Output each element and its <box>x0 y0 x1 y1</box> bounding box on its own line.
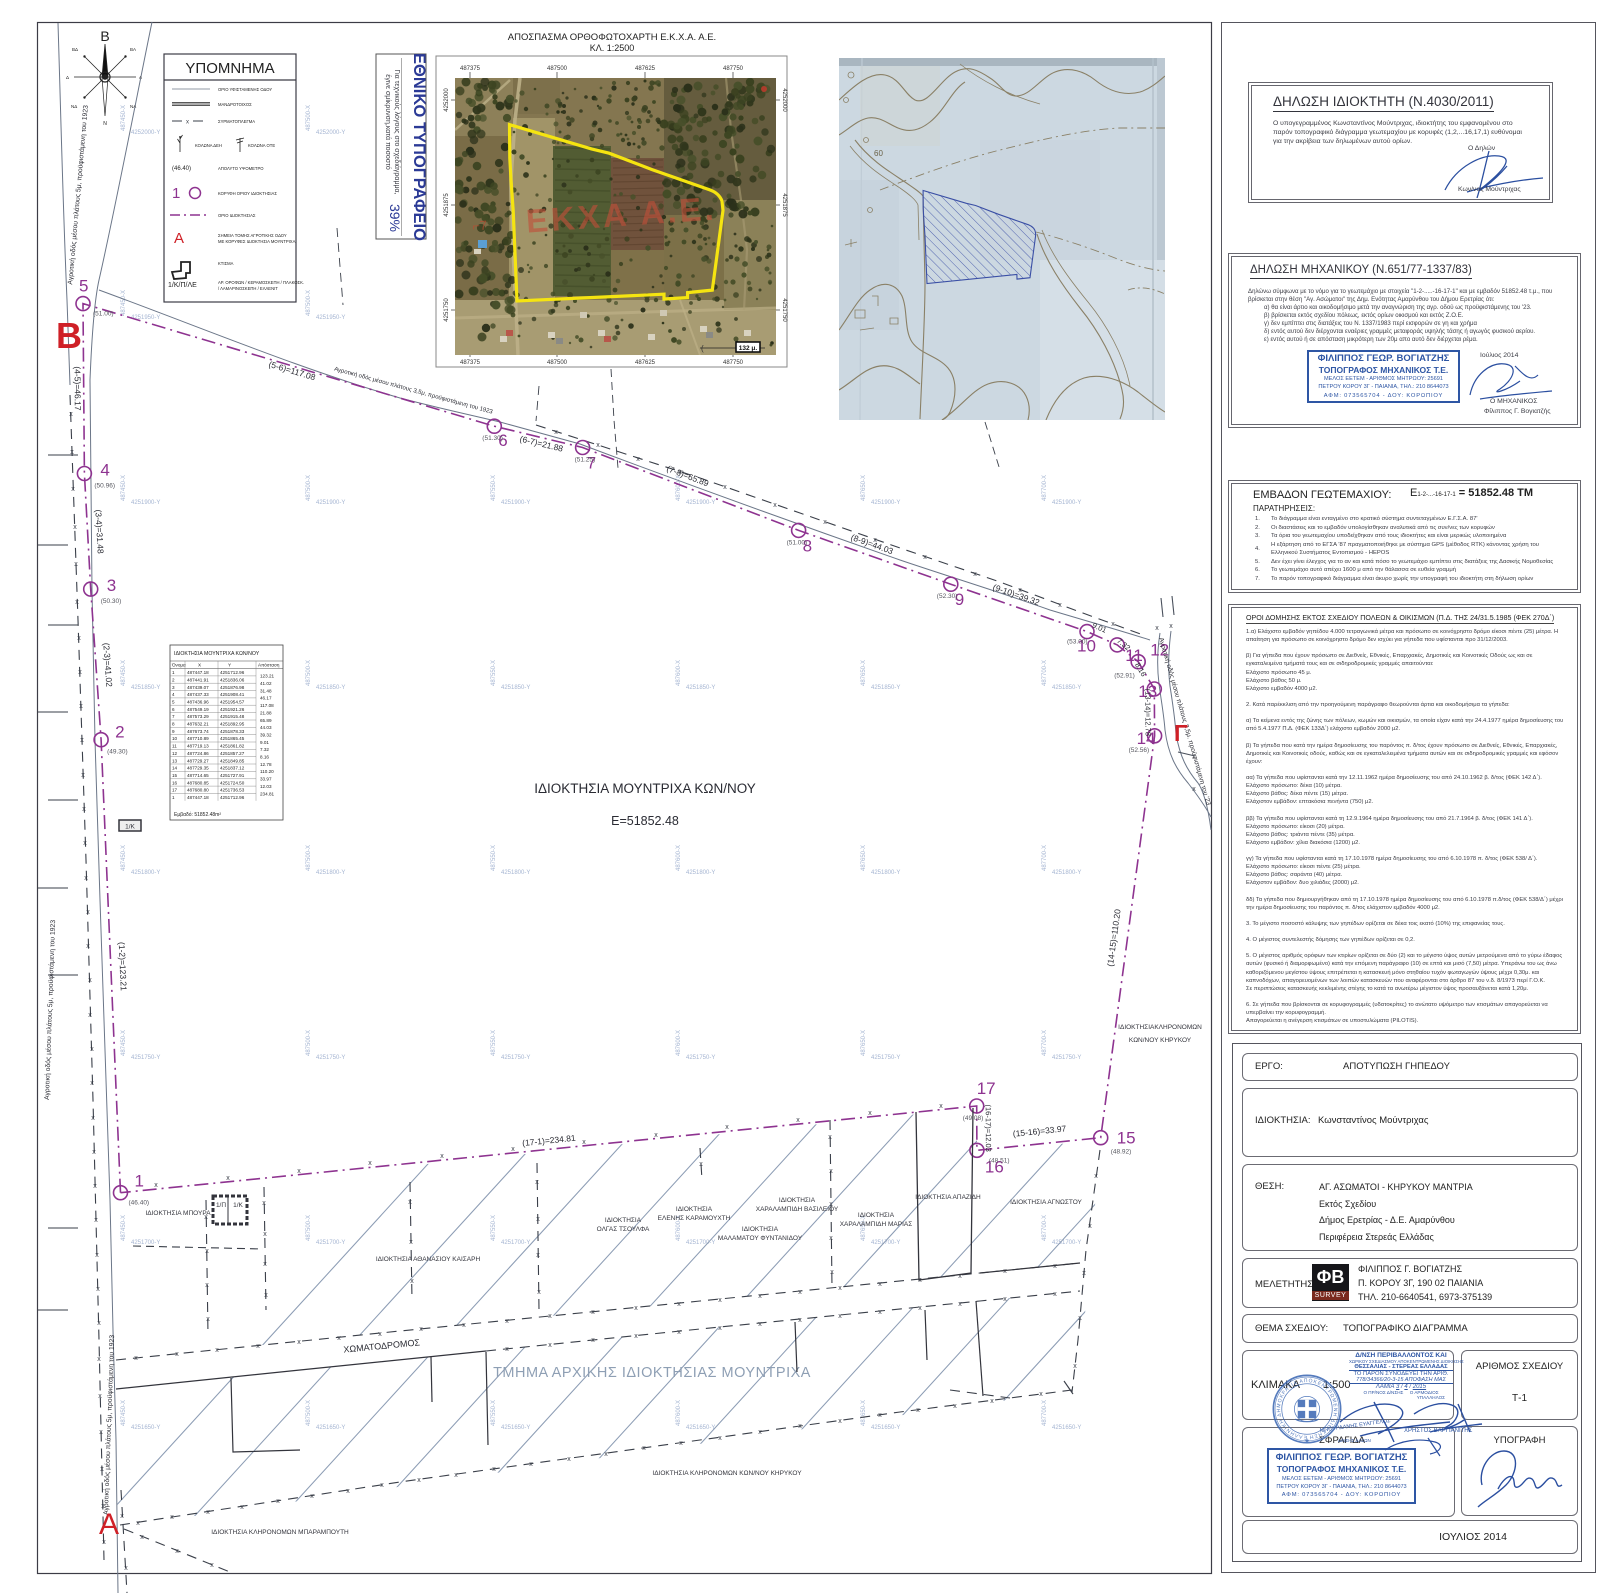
svg-text:x: x <box>829 1201 833 1208</box>
svg-text:ΑΡ. ΟΡΟΦΩΝ / ΚΕΡΑΜΟΣΚΕΠΗ / ΠΛΑ: ΑΡ. ΟΡΟΦΩΝ / ΚΕΡΑΜΟΣΚΕΠΗ / ΠΛΑΚΟΣΚ. <box>218 280 304 285</box>
svg-text:487500-X: 487500-X <box>306 845 312 871</box>
svg-text:Για τεχνικούς λόγους στο σχεδι: Για τεχνικούς λόγους στο σχεδιάγραμμα, <box>393 69 401 194</box>
svg-text:x: x <box>591 1337 595 1344</box>
svg-text:(7-8)=65.89: (7-8)=65.89 <box>665 463 710 488</box>
svg-text:(51.00): (51.00) <box>93 311 114 318</box>
svg-text:x: x <box>69 411 73 418</box>
svg-text:ΙΔΙΟΚΤΗΣΙΑ ΜΠΟΥΡΑ: ΙΔΙΟΚΤΗΣΙΑ ΜΠΟΥΡΑ <box>145 1210 211 1217</box>
svg-text:4251750: 4251750 <box>781 298 787 322</box>
svg-text:x: x <box>918 1305 922 1312</box>
svg-text:x: x <box>186 120 189 126</box>
svg-text:x: x <box>215 1347 219 1354</box>
svg-text:x: x <box>796 1117 800 1124</box>
svg-text:x: x <box>529 1461 533 1468</box>
svg-text:Όνομα: Όνομα <box>171 663 186 668</box>
svg-text:X: X <box>198 663 201 668</box>
svg-text:x: x <box>73 524 77 531</box>
svg-text:(14-15)=110.20: (14-15)=110.20 <box>1105 908 1123 967</box>
svg-text:4251837.12: 4251837.12 <box>220 766 245 771</box>
svg-text:A: A <box>174 230 184 247</box>
svg-text:x: x <box>973 571 977 578</box>
svg-text:487650-X: 487650-X <box>861 1400 867 1426</box>
svg-text:ΝΑ: ΝΑ <box>130 104 136 109</box>
svg-text:x: x <box>1088 1223 1092 1230</box>
svg-text:x: x <box>262 1200 266 1207</box>
svg-text:⌐7: ⌐7 <box>472 218 488 234</box>
svg-text:(17-1)=234.81: (17-1)=234.81 <box>522 1133 577 1148</box>
svg-text:x: x <box>97 1320 101 1327</box>
svg-text:4: 4 <box>172 692 175 697</box>
svg-text:ΙΔΙΟΚΤΗΣΙΑ ΚΛΗΡΟΝΟΜΩΝ ΚΩΝ/ΝΟΥ: ΙΔΙΟΚΤΗΣΙΑ ΚΛΗΡΟΝΟΜΩΝ ΚΩΝ/ΝΟΥ ΚΗΡΥΚΟΥ <box>652 1470 802 1477</box>
svg-text:(6-7)=21.88: (6-7)=21.88 <box>519 434 565 454</box>
svg-text:487500-X: 487500-X <box>306 1030 312 1056</box>
svg-text:4251850-Y: 4251850-Y <box>131 685 160 691</box>
svg-text:x: x <box>636 456 640 463</box>
svg-text:ΜΑΝΔΡΟΤΟΙΧΟΣ: ΜΑΝΔΡΟΤΟΙΧΟΣ <box>218 102 252 107</box>
svg-text:132 μ.: 132 μ. <box>739 345 758 352</box>
svg-text:4251878.33: 4251878.33 <box>220 729 245 734</box>
svg-text:x: x <box>256 1343 260 1350</box>
svg-text:x: x <box>604 1451 608 1458</box>
svg-text:x: x <box>838 1313 842 1320</box>
svg-text:ΚΟΡΥΦΗ ΟΡΙΟΥ ΙΔΙΟΚΤΗΣΙΑΣ: ΚΟΡΥΦΗ ΟΡΙΟΥ ΙΔΙΟΚΤΗΣΙΑΣ <box>218 191 277 196</box>
svg-text:17: 17 <box>977 1079 996 1098</box>
svg-text:4251800-Y: 4251800-Y <box>871 870 900 876</box>
svg-text:x: x <box>511 1146 515 1153</box>
svg-text:Y: Y <box>228 663 231 668</box>
svg-text:4251850-Y: 4251850-Y <box>871 685 900 691</box>
svg-text:4251650-Y: 4251650-Y <box>501 1425 530 1431</box>
svg-text:4251850-Y: 4251850-Y <box>501 685 530 691</box>
svg-text:4251950-Y: 4251950-Y <box>316 315 345 321</box>
svg-text:487550-X: 487550-X <box>491 1030 497 1056</box>
svg-text:ΤΜΗΜΑ ΑΡΧΙΚΗΣ ΙΔΙΟΚΤΗΣΙΑΣ ΜΟΥΝ: ΤΜΗΜΑ ΑΡΧΙΚΗΣ ΙΔΙΟΚΤΗΣΙΑΣ ΜΟΥΝΤΡΙΧΑ <box>493 1365 811 1381</box>
svg-text:487600-X: 487600-X <box>676 660 682 686</box>
svg-text:x: x <box>1169 623 1173 630</box>
svg-text:4251800-Y: 4251800-Y <box>686 870 715 876</box>
svg-text:4251750-Y: 4251750-Y <box>501 1055 530 1061</box>
svg-text:ΙΔΙΟΚΤΗΣΙΑ: ΙΔΙΟΚΤΗΣΙΑ <box>676 1206 713 1213</box>
svg-text:4251861.82: 4251861.82 <box>220 744 245 749</box>
svg-text:ΑΠΟΣΠΑΣΜΑ ΟΡΘΟΦΩΤΟΧΑΡΤΗ Ε.Κ.Χ.: ΑΠΟΣΠΑΣΜΑ ΟΡΘΟΦΩΤΟΧΑΡΤΗ Ε.Κ.Χ.Α. Α.Ε. <box>508 32 716 43</box>
svg-text:x: x <box>206 1316 210 1323</box>
svg-text:487500-X: 487500-X <box>306 1215 312 1241</box>
svg-text:x: x <box>773 502 777 509</box>
svg-text:x: x <box>154 1182 158 1189</box>
svg-text:x: x <box>83 840 87 847</box>
svg-text:487673.74: 487673.74 <box>187 729 209 734</box>
svg-text:4251712.96: 4251712.96 <box>220 670 245 675</box>
svg-text:x: x <box>878 1281 882 1288</box>
svg-text:4251850-Y: 4251850-Y <box>316 685 345 691</box>
svg-text:ΙΔΙΟΚΤΗΣΙΑΚΛΗΡΟΝΟΜΩΝ: ΙΔΙΟΚΤΗΣΙΑΚΛΗΡΟΝΟΜΩΝ <box>1118 1024 1202 1031</box>
svg-text:x: x <box>1053 1263 1057 1270</box>
svg-text:N: N <box>103 121 107 127</box>
svg-text:(51.30): (51.30) <box>482 435 503 442</box>
svg-text:/ ΛΑΜΑΡΙΝΟΣΚΕΠΗ / ΕΛΛΕΝΙΤ: / ΛΑΜΑΡΙΝΟΣΚΕΠΗ / ΕΛΛΕΝΙΤ <box>218 286 278 291</box>
svg-text:ΙΔΙΟΚΤΗΣΙΑ: ΙΔΙΟΚΤΗΣΙΑ <box>742 1226 779 1233</box>
svg-text:x: x <box>75 599 79 606</box>
svg-text:1/Κ: 1/Κ <box>233 1202 243 1209</box>
svg-text:x: x <box>440 1153 444 1160</box>
svg-text:x: x <box>1058 602 1062 609</box>
svg-text:487750: 487750 <box>723 360 744 366</box>
svg-text:487375: 487375 <box>460 66 481 72</box>
svg-text:x: x <box>798 1423 802 1430</box>
svg-text:487700-X: 487700-X <box>1042 1400 1048 1426</box>
svg-text:4251915.48: 4251915.48 <box>220 714 245 719</box>
svg-text:ΙΔΙΟΚΤΗΣΙΑ ΑΠΑΖΙΔΗ: ΙΔΙΟΚΤΗΣΙΑ ΑΠΑΖΙΔΗ <box>915 1194 981 1201</box>
svg-text:ΕΛΕΝΗΣ ΚΑΡΑΜΟΥΧΤΗ: ΕΛΕΝΗΣ ΚΑΡΑΜΟΥΧΤΗ <box>658 1215 731 1222</box>
svg-text:Αγροτική οδός μέσου πλάτους 5μ: Αγροτική οδός μέσου πλάτους 5μ, προϋφιστ… <box>43 920 57 1100</box>
svg-text:4251849.85: 4251849.85 <box>220 758 245 763</box>
svg-text:4251900-Y: 4251900-Y <box>131 500 160 506</box>
svg-text:3: 3 <box>172 685 175 690</box>
svg-text:10: 10 <box>172 736 178 741</box>
svg-text:21.88: 21.88 <box>260 710 272 715</box>
svg-text:4251892.95: 4251892.95 <box>220 722 245 727</box>
svg-text:1/K: 1/K <box>125 824 135 831</box>
svg-text:15: 15 <box>1117 1129 1136 1148</box>
svg-text:Δ: Δ <box>66 75 69 80</box>
svg-text:ΕΘΝΙΚΟ ΤΥΠΟΓΡΑΦΕΙΟ: ΕΘΝΙΚΟ ΤΥΠΟΓΡΑΦΕΙΟ <box>410 53 428 241</box>
svg-text:487600-X: 487600-X <box>676 845 682 871</box>
svg-text:x: x <box>124 1565 128 1572</box>
svg-text:x: x <box>990 1398 994 1405</box>
svg-text:Γ: Γ <box>1174 720 1188 746</box>
svg-text:4251875: 4251875 <box>781 193 787 217</box>
svg-text:x: x <box>462 1322 466 1329</box>
svg-text:x: x <box>548 1313 552 1320</box>
svg-text:(52.56): (52.56) <box>1129 747 1150 754</box>
svg-text:x: x <box>1039 1391 1043 1398</box>
svg-text:33.97: 33.97 <box>260 777 272 782</box>
svg-text:x: x <box>1111 621 1115 628</box>
svg-text:14: 14 <box>172 766 178 771</box>
svg-text:4251921.26: 4251921.26 <box>220 707 245 712</box>
svg-text:x: x <box>916 1407 920 1414</box>
svg-text:5: 5 <box>172 699 175 704</box>
svg-text:12.78: 12.78 <box>260 762 272 767</box>
svg-text:x: x <box>582 1139 586 1146</box>
svg-text:4251727.91: 4251727.91 <box>220 773 245 778</box>
svg-text:4251650-Y: 4251650-Y <box>131 1425 160 1431</box>
svg-text:487450-X: 487450-X <box>121 290 127 316</box>
svg-text:4251954.57: 4251954.57 <box>220 699 245 704</box>
svg-text:x: x <box>679 1440 683 1447</box>
svg-text:x: x <box>634 1305 638 1312</box>
svg-text:487729.35: 487729.35 <box>187 766 209 771</box>
svg-text:8.16: 8.16 <box>260 755 269 760</box>
svg-text:x: x <box>830 1269 834 1276</box>
svg-text:4251736.53: 4251736.53 <box>220 788 245 793</box>
svg-text:x: x <box>1003 1296 1007 1303</box>
svg-text:x: x <box>346 1488 350 1495</box>
svg-text:4: 4 <box>100 461 109 480</box>
svg-text:x: x <box>205 1248 209 1255</box>
svg-text:x: x <box>1192 786 1196 793</box>
svg-text:4251650-Y: 4251650-Y <box>1052 1425 1081 1431</box>
svg-text:(1-2)=123.21: (1-2)=123.21 <box>117 942 129 992</box>
svg-text:x: x <box>90 1080 94 1087</box>
svg-text:x: x <box>94 1217 98 1224</box>
svg-text:Αγροτική οδός μέσου πλάτους 5μ: Αγροτική οδός μέσου πλάτους 5μ, προϋφιστ… <box>102 1335 116 1515</box>
svg-text:110.20: 110.20 <box>260 769 274 774</box>
svg-text:487500-X: 487500-X <box>306 1400 312 1426</box>
svg-text:x: x <box>548 1342 552 1349</box>
svg-text:x: x <box>677 1329 681 1336</box>
svg-text:487500-X: 487500-X <box>306 475 312 501</box>
svg-text:x: x <box>86 909 90 916</box>
svg-text:x: x <box>505 1318 509 1325</box>
svg-text:x: x <box>79 703 83 710</box>
svg-text:123.21: 123.21 <box>260 674 274 679</box>
svg-text:x: x <box>226 1175 230 1182</box>
svg-text:x: x <box>310 1493 314 1500</box>
svg-text:x: x <box>175 1351 179 1358</box>
svg-text:x: x <box>99 1429 103 1436</box>
svg-text:x: x <box>758 1429 762 1436</box>
svg-text:487680.80: 487680.80 <box>187 788 209 793</box>
svg-text:487437.33: 487437.33 <box>187 692 209 697</box>
svg-text:4251850-Y: 4251850-Y <box>686 685 715 691</box>
svg-text:(2-3)=41.02: (2-3)=41.02 <box>101 642 114 687</box>
svg-text:x: x <box>81 772 85 779</box>
svg-text:4251650-Y: 4251650-Y <box>871 1425 900 1431</box>
svg-text:487700-X: 487700-X <box>1042 475 1048 501</box>
svg-text:A: A <box>99 1508 119 1541</box>
svg-text:x: x <box>134 1355 138 1362</box>
svg-text:9: 9 <box>172 729 175 734</box>
svg-text:x: x <box>829 1168 833 1175</box>
svg-text:x: x <box>140 1534 144 1541</box>
svg-text:487500-X: 487500-X <box>306 105 312 131</box>
svg-text:x: x <box>1082 1270 1086 1277</box>
svg-text:x: x <box>567 1456 571 1463</box>
svg-text:4251900-Y: 4251900-Y <box>871 500 900 506</box>
svg-text:1: 1 <box>135 1172 144 1191</box>
svg-text:487550-X: 487550-X <box>491 475 497 501</box>
svg-text:x: x <box>718 1297 722 1304</box>
svg-text:x: x <box>828 1134 832 1141</box>
svg-text:ΚΟΛΩΝΑ ΔΕΗ: ΚΟΛΩΝΑ ΔΕΗ <box>195 143 222 148</box>
svg-text:x: x <box>838 1418 842 1425</box>
svg-text:x: x <box>953 1403 957 1410</box>
svg-text:487500: 487500 <box>547 66 568 72</box>
svg-text:487500-X: 487500-X <box>306 290 312 316</box>
svg-text:x: x <box>878 1412 882 1419</box>
svg-text:x: x <box>205 1282 209 1289</box>
svg-text:ΙΔΙΟΚΤΗΣΙΑ: ΙΔΙΟΚΤΗΣΙΑ <box>779 1197 816 1204</box>
svg-text:(3-4)=31.48: (3-4)=31.48 <box>93 509 105 554</box>
svg-text:46.17: 46.17 <box>260 696 272 701</box>
svg-text:6: 6 <box>172 707 175 712</box>
svg-text:2: 2 <box>115 723 124 742</box>
svg-text:(13-14)=12.78: (13-14)=12.78 <box>1143 689 1152 736</box>
svg-text:487724.86: 487724.86 <box>187 751 209 756</box>
svg-text:x: x <box>276 1498 280 1505</box>
svg-text:ΙΔΙΟΚΤΗΣΙΑ ΑΘΑΝΑΣΙΟΥ ΚΑΙΣΑΡΗ: ΙΔΙΟΚΤΗΣΙΑ ΑΘΑΝΑΣΙΟΥ ΚΑΙΣΑΡΗ <box>376 1256 481 1263</box>
svg-text:x: x <box>80 737 84 744</box>
svg-text:487573.29: 487573.29 <box>187 714 209 719</box>
svg-text:4252000: 4252000 <box>781 88 787 112</box>
svg-text:1/Κ/Π/ΛΕ: 1/Κ/Π/ΛΕ <box>168 282 197 289</box>
svg-text:44.03: 44.03 <box>260 725 272 730</box>
svg-text:487441.91: 487441.91 <box>187 677 209 682</box>
svg-text:487680.85: 487680.85 <box>187 780 209 785</box>
svg-text:x: x <box>537 1289 541 1296</box>
svg-text:4251900-Y: 4251900-Y <box>501 500 530 506</box>
svg-text:(53.00): (53.00) <box>1067 639 1088 646</box>
svg-text:(51.00): (51.00) <box>787 539 808 546</box>
svg-text:x: x <box>378 1331 382 1338</box>
svg-text:ΟΡΙΟ ΥΦΙΣΤΑΜΕΝΗΣ ΟΔΟΥ: ΟΡΙΟ ΥΦΙΣΤΑΜΕΝΗΣ ΟΔΟΥ <box>218 87 272 92</box>
svg-text:ΜΑΛΑΜΑΤΟΥ ΦΥΝΤΑΝΙΔΟΥ: ΜΑΛΑΜΑΤΟΥ ΦΥΝΤΑΝΙΔΟΥ <box>718 1235 803 1242</box>
svg-text:x: x <box>84 875 88 882</box>
svg-text:65.89: 65.89 <box>260 718 272 723</box>
svg-text:x: x <box>74 561 78 568</box>
svg-text:x: x <box>120 1513 124 1520</box>
svg-text:4251900-Y: 4251900-Y <box>686 500 715 506</box>
svg-text:x: x <box>718 1435 722 1442</box>
svg-text:487549.19: 487549.19 <box>187 707 209 712</box>
svg-text:x: x <box>725 1124 729 1131</box>
svg-text:B: B <box>100 28 109 44</box>
svg-text:4251700-Y: 4251700-Y <box>131 1240 160 1246</box>
svg-text:x: x <box>96 1286 100 1293</box>
svg-text:3: 3 <box>107 576 116 595</box>
svg-text:487700-X: 487700-X <box>1042 1030 1048 1056</box>
svg-text:4251908.41: 4251908.41 <box>220 692 245 697</box>
svg-text:(49.30): (49.30) <box>107 749 128 756</box>
svg-text:487625: 487625 <box>635 360 656 366</box>
svg-text:B: B <box>56 315 82 356</box>
svg-text:487729.27: 487729.27 <box>187 758 209 763</box>
svg-text:(46.40): (46.40) <box>172 166 191 172</box>
svg-text:x: x <box>170 1514 174 1521</box>
svg-text:487719.13: 487719.13 <box>187 744 209 749</box>
svg-text:4251800-Y: 4251800-Y <box>1052 870 1081 876</box>
svg-text:ΚΟΛΩΝΑ ΟΤΕ: ΚΟΛΩΝΑ ΟΤΕ <box>248 143 275 148</box>
svg-text:x: x <box>798 1317 802 1324</box>
svg-text:8: 8 <box>172 722 175 727</box>
svg-text:x: x <box>408 1199 412 1206</box>
svg-text:ΑΠΟΛΥΤΟ ΥΨΟΜΕΤΡΟ: ΑΠΟΛΥΤΟ ΥΨΟΜΕΤΡΟ <box>218 166 264 171</box>
svg-text:x: x <box>1078 1315 1082 1322</box>
svg-text:ΧΑΡΑΛΑΜΠΙΔΗ ΜΑΡΙΑΣ: ΧΑΡΑΛΑΜΠΙΔΗ ΜΑΡΙΑΣ <box>840 1221 913 1228</box>
svg-text:41.02: 41.02 <box>260 681 272 686</box>
svg-text:4251865.45: 4251865.45 <box>220 736 245 741</box>
svg-text:x: x <box>240 1504 244 1511</box>
svg-text:x: x <box>77 635 81 642</box>
svg-text:x: x <box>263 1231 267 1238</box>
svg-text:Αγροτική οδός μέσου πλάτους 5μ: Αγροτική οδός μέσου πλάτους 5μ, προϋφιστ… <box>66 105 90 285</box>
svg-text:12.03: 12.03 <box>260 784 272 789</box>
svg-text:x: x <box>1094 1173 1098 1180</box>
svg-text:x: x <box>78 669 82 676</box>
svg-text:x: x <box>93 1183 97 1190</box>
svg-text:487710.89: 487710.89 <box>187 736 209 741</box>
svg-text:x: x <box>1053 1291 1057 1298</box>
svg-text:ΧΑΡΑΛΑΜΠΙΔΗ ΒΑΣΙΛΕΙΟΥ: ΧΑΡΑΛΑΜΠΙΔΗ ΒΑΣΙΛΕΙΟΥ <box>756 1206 839 1213</box>
svg-text:ΚΤΙΣΜΑ: ΚΤΙΣΜΑ <box>218 261 234 266</box>
svg-text:ΒΔ: ΒΔ <box>72 47 78 52</box>
svg-text:x: x <box>206 1509 210 1516</box>
svg-text:4251700-Y: 4251700-Y <box>316 1240 345 1246</box>
svg-text:487439.07: 487439.07 <box>187 685 209 690</box>
svg-text:487436.96: 487436.96 <box>187 699 209 704</box>
svg-text:487450-X: 487450-X <box>121 1030 127 1056</box>
svg-text:4251712.96: 4251712.96 <box>220 795 245 800</box>
svg-text:4251650-Y: 4251650-Y <box>316 1425 345 1431</box>
svg-text:4251800-Y: 4251800-Y <box>316 870 345 876</box>
svg-text:(16-17)=12.03: (16-17)=12.03 <box>984 1104 993 1151</box>
svg-text:487447.18: 487447.18 <box>187 670 209 675</box>
svg-text:487650-X: 487650-X <box>861 1030 867 1056</box>
svg-text:ΙΔΙΟΚΤΗΣΙΑ ΑΓΝΩΣΤΟΥ: ΙΔΙΟΚΤΗΣΙΑ ΑΓΝΩΣΤΟΥ <box>1010 1199 1082 1206</box>
svg-text:x: x <box>264 1292 268 1299</box>
svg-text:17: 17 <box>172 788 178 793</box>
svg-text:x: x <box>758 1293 762 1300</box>
svg-text:ΟΡΙΟ ΙΔΙΟΚΤΗΣΙΑΣ: ΟΡΙΟ ΙΔΙΟΚΤΗΣΙΑΣ <box>218 213 256 218</box>
svg-text:487500: 487500 <box>547 360 568 366</box>
svg-text:4251900-Y: 4251900-Y <box>316 500 345 506</box>
svg-text:x: x <box>297 1168 301 1175</box>
svg-text:4251836.06: 4251836.06 <box>220 677 245 682</box>
svg-text:x: x <box>88 977 92 984</box>
svg-text:4251750-Y: 4251750-Y <box>1052 1055 1081 1061</box>
svg-text:x: x <box>263 1261 267 1268</box>
svg-text:Αγροτική οδός μέσου πλάτους 3,: Αγροτική οδός μέσου πλάτους 3,5μ, προϋφι… <box>333 366 494 416</box>
svg-text:4251850-Y: 4251850-Y <box>1052 685 1081 691</box>
svg-text:487750: 487750 <box>723 66 744 72</box>
svg-text:487450-X: 487450-X <box>121 1215 127 1241</box>
svg-text:4251900-Y: 4251900-Y <box>1052 500 1081 506</box>
svg-text:x: x <box>868 1110 872 1117</box>
svg-text:487500-X: 487500-X <box>306 660 312 686</box>
svg-text:487632.21: 487632.21 <box>187 722 209 727</box>
svg-text:ΒΑ: ΒΑ <box>130 47 136 52</box>
svg-text:487550-X: 487550-X <box>491 1400 497 1426</box>
svg-text:(52.30): (52.30) <box>937 593 958 600</box>
svg-text:11: 11 <box>172 744 177 749</box>
svg-text:x: x <box>136 1520 140 1527</box>
svg-text:487600-X: 487600-X <box>676 1400 682 1426</box>
svg-text:39.32: 39.32 <box>260 732 272 737</box>
svg-text:x: x <box>536 1216 540 1223</box>
svg-text:(52.91): (52.91) <box>1114 673 1135 680</box>
svg-text:ΥΠΟΜΝΗΜΑ: ΥΠΟΜΝΗΜΑ <box>185 60 274 77</box>
svg-text:x: x <box>829 1235 833 1242</box>
svg-text:x: x <box>454 1472 458 1479</box>
svg-text:x: x <box>1155 625 1159 632</box>
svg-text:x: x <box>823 519 827 526</box>
svg-text:12: 12 <box>172 751 178 756</box>
svg-text:x: x <box>210 1562 214 1569</box>
svg-text:x: x <box>410 1278 414 1285</box>
svg-text:487700-X: 487700-X <box>1042 1215 1048 1241</box>
svg-text:487450-X: 487450-X <box>121 660 127 686</box>
svg-text:Απόσταση: Απόσταση <box>258 662 280 668</box>
svg-text:x: x <box>1073 1363 1077 1370</box>
svg-text:x: x <box>97 1356 101 1363</box>
svg-text:x: x <box>654 1132 658 1139</box>
svg-text:x: x <box>82 806 86 813</box>
svg-text:ΙΔΙΟΚΤΗΣΙΑ ΜΟΥΝΤΡΙΧΑ ΚΩΝ/ΝΟΥ: ΙΔΙΟΚΤΗΣΙΑ ΜΟΥΝΤΡΙΧΑ ΚΩΝ/ΝΟΥ <box>174 651 260 657</box>
svg-text:487450-X: 487450-X <box>121 845 127 871</box>
svg-text:ΜΕ ΚΟΡΥΦΕΣ ΙΔΙΟΚΤΗΣΙΑ ΜΟΥΝΤΡΙΧ: ΜΕ ΚΟΡΥΦΕΣ ΙΔΙΟΚΤΗΣΙΑ ΜΟΥΝΤΡΙΧΑ <box>218 239 296 244</box>
svg-text:έγινε σμίκρυνση,κατά ποσοστό: έγινε σμίκρυνση,κατά ποσοστό <box>384 74 392 170</box>
